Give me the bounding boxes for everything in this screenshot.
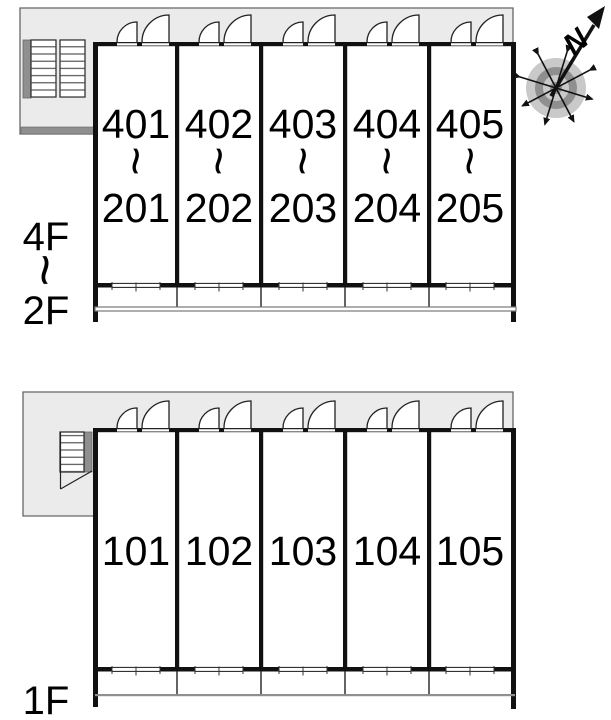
- range-tilde: ~: [108, 146, 164, 175]
- floor-label: 2F: [23, 289, 70, 333]
- unit-number-103: 103: [269, 528, 337, 574]
- unit-number-101: 101: [102, 528, 170, 574]
- lower-left-wall: [93, 428, 98, 707]
- unit-cell-404-204: 404 ~ 204: [353, 101, 421, 231]
- range-tilde: ~: [275, 146, 331, 175]
- unit-number: 202: [185, 185, 253, 231]
- window-icon: [446, 666, 494, 676]
- compass-rose: N: [520, 6, 605, 124]
- window-icon: [195, 282, 243, 292]
- upper-block: 401 ~ 201 402 ~ 202 403 ~ 203 404 ~ 204 …: [15, 8, 517, 333]
- unit-cell-402-202: 402 ~ 202: [185, 101, 253, 231]
- window-icon: [279, 666, 327, 676]
- floor-plan-page: 401 ~ 201 402 ~ 202 403 ~ 203 404 ~ 204 …: [0, 0, 611, 720]
- unit-number: 201: [102, 185, 170, 231]
- unit-divider: [427, 44, 431, 287]
- lower-right-wall: [511, 428, 516, 709]
- floor-label: 4F: [23, 215, 70, 259]
- window-icon: [195, 666, 243, 676]
- unit-number: 205: [436, 185, 504, 231]
- upper-stairwell-shadow: [21, 127, 95, 134]
- unit-divider: [175, 44, 179, 287]
- unit-divider: [259, 430, 263, 671]
- unit-number-105: 105: [436, 528, 504, 574]
- unit-number-102: 102: [185, 528, 253, 574]
- north-label: N: [557, 22, 596, 62]
- unit-number: 403: [269, 101, 337, 147]
- unit-number: 402: [185, 101, 253, 147]
- unit-number: 404: [353, 101, 421, 147]
- unit-divider: [343, 44, 347, 287]
- unit-number: 203: [269, 185, 337, 231]
- unit-divider: [259, 44, 263, 287]
- staircase-icon-upper: [23, 40, 85, 98]
- unit-divider: [427, 430, 431, 671]
- window-icon: [363, 666, 411, 676]
- upper-left-wall: [93, 42, 98, 322]
- unit-cell-401-201: 401 ~ 201: [102, 101, 170, 231]
- balcony-edge: [95, 307, 516, 311]
- unit-number-104: 104: [353, 528, 421, 574]
- upper-right-wall: [511, 42, 516, 322]
- unit-number: 204: [353, 185, 421, 231]
- range-tilde: ~: [191, 146, 247, 175]
- range-tilde: ~: [15, 254, 78, 287]
- terrace-edge: [95, 694, 515, 696]
- window-icon: [446, 282, 494, 292]
- window-icon: [279, 282, 327, 292]
- window-icon: [363, 282, 411, 292]
- window-icon: [112, 282, 160, 292]
- unit-divider: [343, 430, 347, 671]
- unit-cell-403-203: 403 ~ 203: [269, 101, 337, 231]
- unit-divider: [175, 430, 179, 671]
- window-icon: [112, 666, 160, 676]
- floor-label-1f: 1F: [23, 679, 70, 720]
- unit-cell-405-205: 405 ~ 205: [436, 101, 504, 231]
- lower-block: 101 102 103 104 105 1F: [23, 392, 516, 720]
- range-tilde: ~: [359, 146, 415, 175]
- unit-number: 405: [436, 101, 504, 147]
- range-tilde: ~: [442, 146, 498, 175]
- unit-number: 401: [102, 101, 170, 147]
- floor-plan-drawing: 401 ~ 201 402 ~ 202 403 ~ 203 404 ~ 204 …: [0, 0, 611, 720]
- floor-range-label-upper: 4F ~ 2F: [15, 215, 78, 333]
